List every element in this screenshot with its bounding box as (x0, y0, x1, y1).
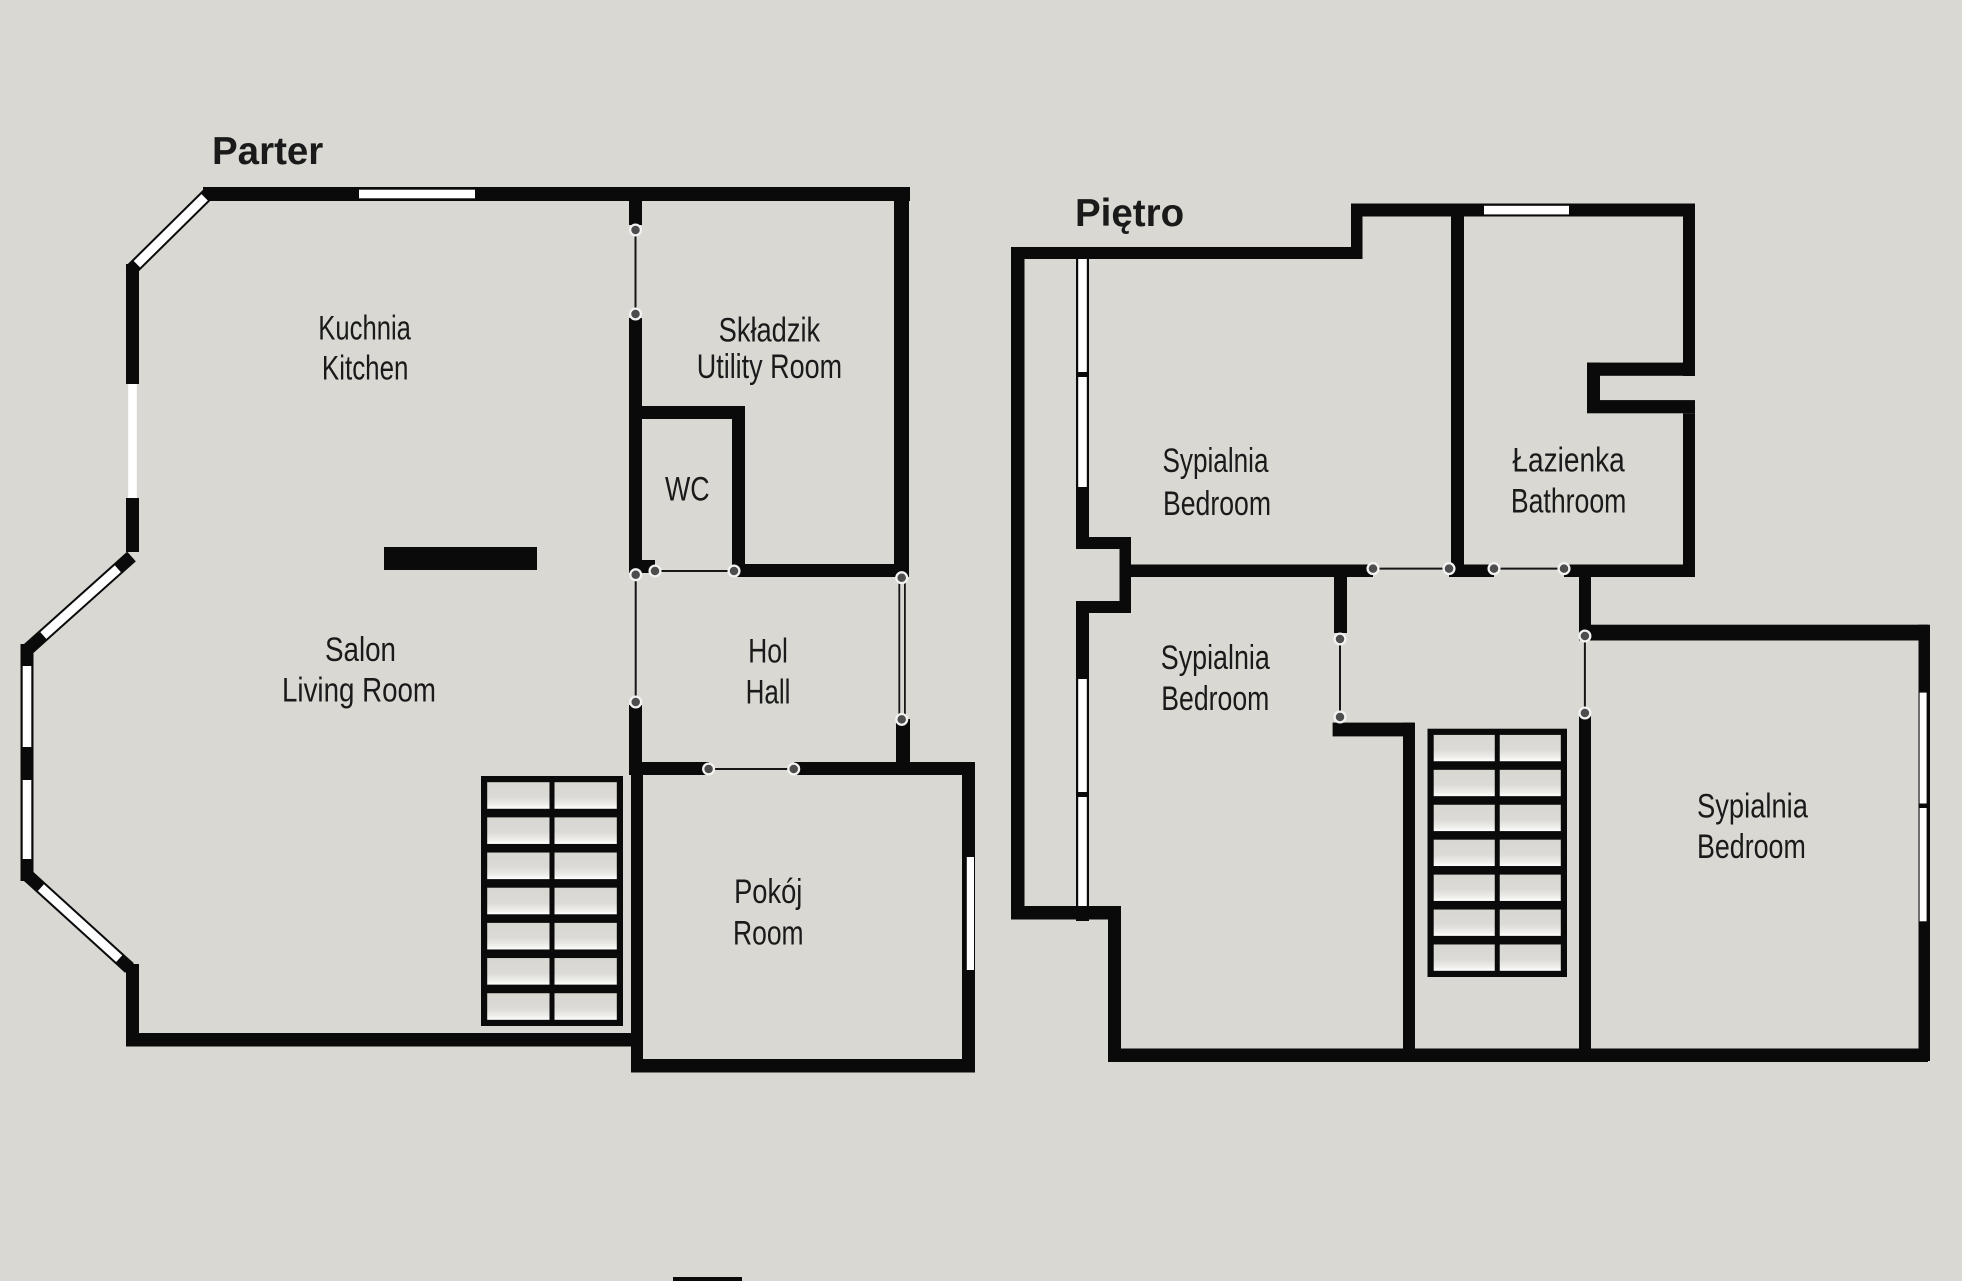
svg-text:Piętro: Piętro (1075, 192, 1184, 235)
svg-text:Hall: Hall (746, 674, 791, 712)
svg-text:Bedroom: Bedroom (1697, 828, 1806, 866)
svg-text:Sypialnia: Sypialnia (1161, 639, 1271, 677)
svg-text:Bathroom: Bathroom (1511, 482, 1627, 520)
svg-text:Sypialnia: Sypialnia (1163, 442, 1270, 480)
svg-text:Parter: Parter (212, 130, 323, 173)
svg-text:Pokój: Pokój (734, 873, 802, 911)
svg-text:Utility Room: Utility Room (697, 348, 842, 386)
svg-text:Sypialnia: Sypialnia (1697, 787, 1809, 825)
svg-text:Room: Room (733, 915, 804, 953)
svg-text:Kitchen: Kitchen (322, 350, 409, 388)
svg-text:Salon: Salon (325, 631, 396, 669)
svg-text:WC: WC (665, 471, 710, 509)
svg-text:Łazienka: Łazienka (1512, 442, 1625, 480)
svg-text:Składzik: Składzik (719, 312, 821, 350)
svg-text:Bedroom: Bedroom (1161, 680, 1269, 718)
svg-text:Hol: Hol (748, 633, 788, 671)
svg-text:Living Room: Living Room (282, 672, 436, 710)
svg-text:Bedroom: Bedroom (1163, 485, 1271, 523)
svg-text:Kuchnia: Kuchnia (318, 310, 411, 348)
